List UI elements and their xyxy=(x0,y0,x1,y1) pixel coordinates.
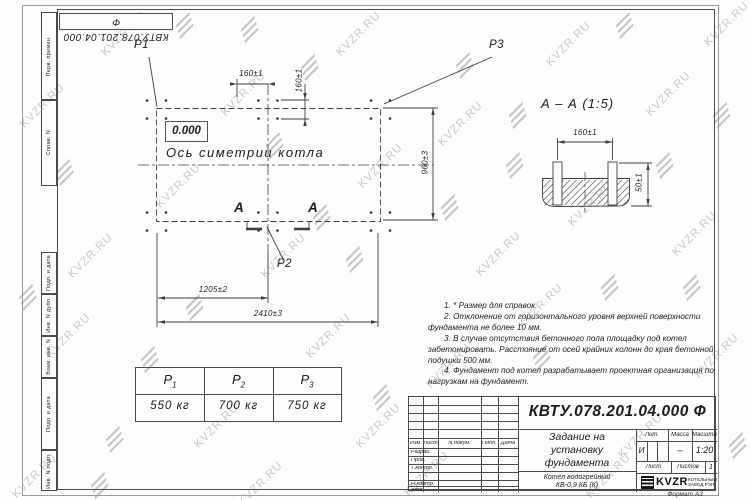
list-label: Лист xyxy=(636,464,671,470)
section-dim-50: 50±1 xyxy=(635,163,644,203)
row-razrab: Разраб. xyxy=(411,450,439,456)
note-4: 4. Фундамент под котел разрабатывает про… xyxy=(428,366,716,388)
load-point-p1-label: P1 xyxy=(134,39,149,51)
listov-label: Листов xyxy=(671,464,705,470)
level-mark-box: 0.000 xyxy=(165,121,208,142)
load-table-header-p3: P3 xyxy=(273,372,341,390)
drawing-title: Задание на установку фундамента xyxy=(518,431,636,470)
load-point-p2-label: P2 xyxy=(277,258,292,270)
drawing-sheet: KVZR.RUKVZR.RUKVZR.RUKVZR.RUKVZR.RUKVZR.… xyxy=(0,0,750,500)
technical-notes: 1. * Размер для справок. 2. Отклонение о… xyxy=(428,301,716,388)
masshtab-value: 1:20 xyxy=(692,445,717,455)
load-table: P1 P2 P3 550 кг 700 кг 750 кг xyxy=(135,367,342,422)
masshtab-label: Масштаб xyxy=(692,432,717,438)
kvzr-logo-icon xyxy=(641,476,654,489)
row-prov: Пров. xyxy=(411,458,439,464)
col-list: Лист xyxy=(423,441,438,447)
dim-2410: 2410±3 xyxy=(240,309,296,318)
note-2: 2. Отклонение от горизонтального уровня … xyxy=(428,312,716,334)
lit-value: И xyxy=(636,445,647,455)
table-divider xyxy=(136,394,341,395)
level-mark: 0.000 xyxy=(172,125,201,137)
document-number: КВТУ.078.201.04.000 Ф xyxy=(518,403,717,421)
load-table-header-p1: P1 xyxy=(136,372,204,390)
load-point-p3-label: P3 xyxy=(489,39,504,51)
note-3: 3. В случае отсутствия бетонного пола пл… xyxy=(428,334,716,367)
col-izm: Изм. xyxy=(409,441,423,447)
listov-value: 1 xyxy=(705,464,717,471)
dim-960: 960±3 xyxy=(421,143,430,183)
row-nkontr: Н.контр. xyxy=(411,482,439,488)
row-tkontr: Т.контр. xyxy=(411,466,439,472)
format-label: Формат А3 xyxy=(645,491,725,498)
product-name: Котел водогрейный КВ-0,9 КБ (К) xyxy=(518,474,636,491)
dim-160-vertical: 160±1 xyxy=(295,61,304,101)
row-utv: Утв. xyxy=(411,488,439,494)
lit-label: Лит. xyxy=(636,432,668,438)
section-dim-160: 160±1 xyxy=(565,128,605,137)
title-block: Изм. Лист N докум. Подп. Дата Разраб. Пр… xyxy=(408,396,716,491)
note-1: 1. * Размер для справок. xyxy=(428,301,716,312)
massa-value: – xyxy=(668,445,692,455)
load-table-value-p2: 700 кг xyxy=(204,400,273,412)
col-ndokum: N докум. xyxy=(438,441,481,447)
col-podp: Подп. xyxy=(481,441,498,447)
dim-1205: 1205±2 xyxy=(185,285,241,294)
massa-label: Масса xyxy=(668,432,692,438)
load-table-value-p3: 750 кг xyxy=(273,400,341,412)
section-mark-letter-right: А xyxy=(308,200,318,215)
load-table-header-p2: P2 xyxy=(204,372,273,390)
factory-name: КОТЕЛЬНЫЙ ЗАВОД РЭП xyxy=(688,477,718,488)
section-view-title: А – А (1:5) xyxy=(541,96,614,111)
section-mark-letter-left: А xyxy=(234,200,244,215)
col-data: Дата xyxy=(498,441,518,447)
boiler-symmetry-axis-label: Ось симетрии котла xyxy=(166,145,324,160)
load-table-value-p1: 550 кг xyxy=(136,400,204,412)
dim-160-horizontal: 160±1 xyxy=(231,69,271,78)
